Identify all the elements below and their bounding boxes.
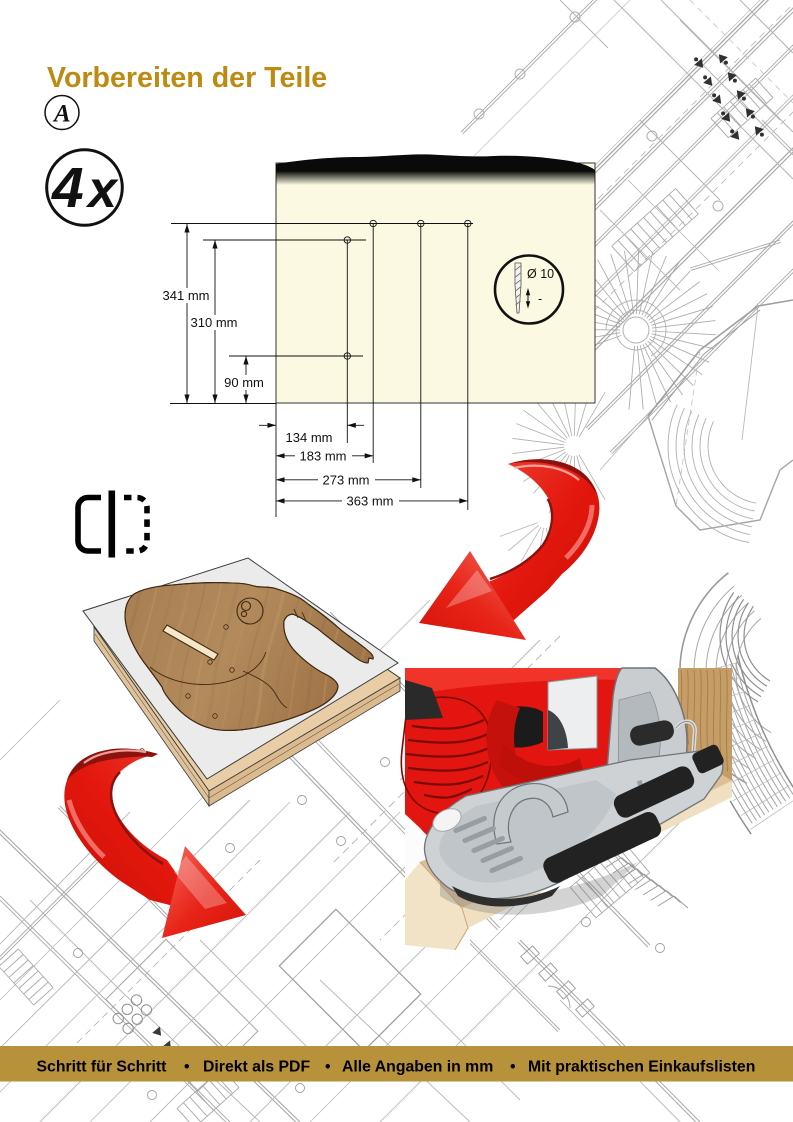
svg-text:Vorbereiten der Teile: Vorbereiten der Teile bbox=[47, 62, 327, 94]
svg-text:A: A bbox=[52, 101, 71, 128]
svg-text:Mit praktischen Einkaufslisten: Mit praktischen Einkaufslisten bbox=[528, 1059, 755, 1076]
svg-text:273 mm: 273 mm bbox=[323, 473, 370, 488]
svg-text:•: • bbox=[510, 1059, 516, 1076]
svg-text:-: - bbox=[538, 292, 542, 306]
svg-text:•: • bbox=[325, 1059, 331, 1076]
svg-text:310 mm: 310 mm bbox=[191, 315, 238, 330]
svg-text:341 mm: 341 mm bbox=[163, 288, 210, 303]
svg-text:363 mm: 363 mm bbox=[347, 494, 394, 509]
svg-text:Ø 10: Ø 10 bbox=[527, 267, 554, 281]
svg-text:4: 4 bbox=[51, 156, 84, 220]
svg-text:Alle Angaben in mm: Alle Angaben in mm bbox=[342, 1059, 493, 1076]
svg-text:x: x bbox=[85, 161, 119, 219]
svg-text:90 mm: 90 mm bbox=[224, 375, 264, 390]
svg-text:134 mm: 134 mm bbox=[286, 430, 333, 445]
svg-text:•: • bbox=[184, 1059, 190, 1076]
svg-text:183 mm: 183 mm bbox=[300, 449, 347, 464]
svg-text:Direkt als PDF: Direkt als PDF bbox=[203, 1059, 310, 1076]
svg-text:Schritt für Schritt: Schritt für Schritt bbox=[37, 1059, 168, 1076]
